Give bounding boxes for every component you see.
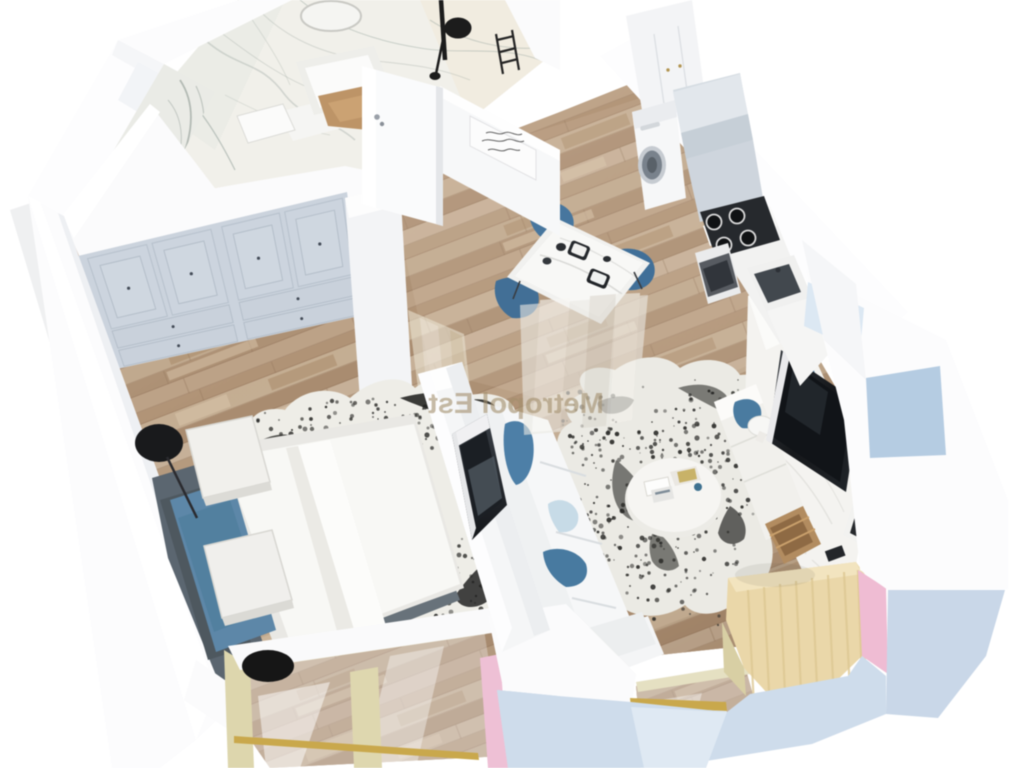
svg-text:Metropol Est: Metropol Est (428, 388, 604, 420)
